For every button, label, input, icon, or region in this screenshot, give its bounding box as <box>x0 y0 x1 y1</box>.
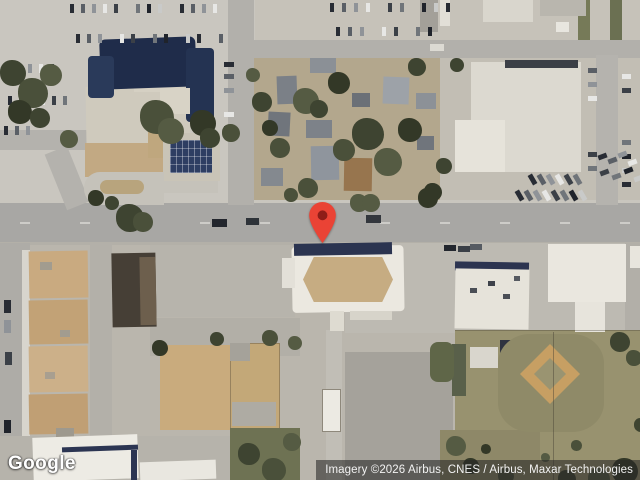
map-feature <box>260 222 270 224</box>
map-feature <box>88 56 114 98</box>
map-feature <box>20 222 30 224</box>
map-feature <box>246 68 260 82</box>
map-feature <box>503 294 510 299</box>
map-feature <box>147 4 151 13</box>
map-feature <box>158 118 184 144</box>
map-feature <box>98 34 102 43</box>
map-feature <box>40 262 52 270</box>
map-feature <box>422 3 426 12</box>
map-feature <box>362 194 380 212</box>
map-feature <box>40 64 62 86</box>
map-feature <box>120 34 124 43</box>
map-feature <box>4 126 8 135</box>
map-feature <box>52 96 56 105</box>
map-feature <box>382 27 386 36</box>
map-feature <box>288 336 302 350</box>
map-feature <box>261 168 283 186</box>
map-feature <box>455 330 640 331</box>
map-feature <box>270 138 290 158</box>
map-feature <box>400 3 404 12</box>
attribution-text: Imagery ©2026 Airbus, CNES / Airbus, Max… <box>325 464 633 476</box>
map-feature <box>388 3 392 12</box>
map-feature <box>200 128 220 148</box>
map-feature <box>222 124 240 142</box>
google-logo[interactable]: Google <box>8 453 76 475</box>
map-feature <box>140 460 217 480</box>
map-feature <box>560 222 570 224</box>
map-feature <box>588 166 597 171</box>
map-feature <box>622 88 631 93</box>
map-feature <box>114 4 118 13</box>
map-feature <box>344 158 373 191</box>
map-feature <box>430 44 444 51</box>
map-feature <box>133 212 153 232</box>
map-feature <box>262 120 278 136</box>
map-feature <box>160 181 218 193</box>
map-feature <box>622 182 631 187</box>
map-feature <box>88 190 104 206</box>
map-feature <box>626 350 640 366</box>
map-feature <box>352 118 384 150</box>
map-feature <box>322 389 341 432</box>
map-feature <box>284 188 298 202</box>
map-feature <box>60 130 78 148</box>
map-feature <box>634 418 640 432</box>
map-feature <box>76 34 80 43</box>
map-feature <box>553 332 554 480</box>
map-feature <box>4 320 11 333</box>
pin-body-icon <box>309 202 336 243</box>
map-feature <box>505 60 578 68</box>
map-feature <box>8 100 32 124</box>
map-feature <box>28 64 32 73</box>
map-feature <box>224 112 234 117</box>
map-feature <box>294 242 392 256</box>
map-feature <box>350 311 392 320</box>
map-feature <box>588 152 597 157</box>
map-feature <box>250 40 640 58</box>
map-feature <box>92 4 96 13</box>
map-feature <box>416 93 436 109</box>
map-feature <box>150 245 295 317</box>
map-feature <box>596 55 618 205</box>
map-feature <box>333 139 355 161</box>
map-feature <box>131 450 137 480</box>
attribution-bar: Imagery ©2026 Airbus, CNES / Airbus, Max… <box>316 460 640 480</box>
map-feature <box>394 27 398 36</box>
map-feature <box>328 72 350 94</box>
map-feature <box>4 300 11 313</box>
map-feature <box>152 340 168 356</box>
map-feature <box>15 126 19 135</box>
map-feature <box>191 4 195 13</box>
map-feature <box>5 352 12 365</box>
map-feature <box>446 3 450 12</box>
map-feature <box>330 311 344 331</box>
map-feature <box>252 92 272 112</box>
map-feature <box>200 222 210 224</box>
map-feature <box>262 330 278 346</box>
map-feature <box>575 302 605 332</box>
map-feature <box>556 22 569 32</box>
map-feature <box>622 140 631 145</box>
map-feature <box>224 62 234 67</box>
map-feature <box>26 126 30 135</box>
map-feature <box>212 219 227 227</box>
map-feature <box>228 0 254 205</box>
map-feature <box>452 344 466 396</box>
map-feature <box>224 74 234 79</box>
map-feature <box>352 93 370 107</box>
map-feature <box>180 4 184 13</box>
map-feature <box>238 443 260 465</box>
map-feature <box>283 433 301 451</box>
map-feature <box>434 3 438 12</box>
map-feature <box>131 34 135 43</box>
map-feature <box>246 218 259 225</box>
map-feature <box>588 68 597 73</box>
map-feature <box>588 82 597 87</box>
map-feature <box>100 180 144 194</box>
map-feature <box>197 34 201 43</box>
map-feature <box>514 276 520 281</box>
map-feature <box>488 281 495 286</box>
map-feature <box>230 343 250 361</box>
map-feature <box>105 196 119 210</box>
map-feature <box>571 440 582 451</box>
map-feature <box>418 188 438 208</box>
pin-dot-icon <box>318 210 328 220</box>
map-feature <box>444 245 456 251</box>
map-feature <box>440 222 450 224</box>
map-feature <box>354 3 358 12</box>
map-feature <box>310 100 328 118</box>
map-feature <box>360 27 364 36</box>
map-feature <box>164 34 168 43</box>
map-feature <box>548 244 626 302</box>
map-feature <box>348 27 352 36</box>
map-feature <box>90 243 112 443</box>
map-feature <box>29 345 89 392</box>
map-feature <box>430 342 454 382</box>
map-feature <box>282 258 295 288</box>
map-viewport[interactable]: Google Imagery ©2026 Airbus, CNES / Airb… <box>0 0 640 480</box>
map-feature <box>458 246 470 252</box>
map-feature <box>336 27 340 36</box>
map-feature <box>408 58 426 76</box>
map-feature <box>380 222 390 224</box>
map-feature <box>219 34 223 43</box>
map-feature <box>298 178 318 198</box>
map-feature <box>610 0 622 40</box>
map-feature <box>610 332 630 352</box>
map-feature <box>622 74 631 79</box>
map-feature <box>60 330 70 337</box>
map-feature <box>306 120 332 138</box>
map-feature <box>500 222 510 224</box>
map-feature <box>374 148 402 176</box>
map-feature <box>45 372 55 379</box>
map-feature <box>87 34 91 43</box>
map-feature <box>224 88 234 93</box>
map-feature <box>428 27 432 36</box>
map-feature <box>450 58 464 72</box>
map-feature <box>262 458 286 480</box>
map-feature <box>436 158 452 174</box>
map-feature <box>455 120 505 172</box>
map-feature <box>416 27 420 36</box>
map-feature <box>540 0 586 16</box>
map-feature <box>70 4 74 13</box>
map-feature <box>136 4 140 13</box>
map-feature <box>80 222 90 224</box>
map-feature <box>620 222 630 224</box>
map-feature <box>310 58 336 73</box>
map-feature <box>186 34 190 43</box>
map-feature <box>29 250 89 298</box>
location-pin[interactable] <box>309 202 336 243</box>
map-feature <box>153 34 157 43</box>
map-feature <box>470 347 498 368</box>
map-feature <box>232 402 276 426</box>
map-feature <box>366 3 370 12</box>
map-feature <box>481 444 491 454</box>
map-feature <box>417 136 434 150</box>
map-feature <box>210 332 224 346</box>
map-feature <box>483 0 533 22</box>
map-feature <box>63 96 67 105</box>
map-feature <box>446 436 466 456</box>
map-feature <box>103 4 107 13</box>
map-feature <box>158 4 162 13</box>
map-feature <box>330 3 334 12</box>
map-feature <box>30 108 50 128</box>
map-feature <box>398 118 422 142</box>
map-feature <box>470 244 482 250</box>
map-feature <box>630 246 640 268</box>
map-feature <box>470 288 477 293</box>
map-feature <box>383 77 410 105</box>
map-feature <box>81 4 85 13</box>
map-feature <box>139 257 156 325</box>
map-feature <box>342 3 346 12</box>
map-feature <box>366 215 381 223</box>
map-feature <box>29 299 89 344</box>
map-feature <box>588 96 597 101</box>
map-feature <box>4 420 11 433</box>
map-feature <box>213 4 217 13</box>
map-feature <box>202 4 206 13</box>
map-feature <box>303 257 393 302</box>
